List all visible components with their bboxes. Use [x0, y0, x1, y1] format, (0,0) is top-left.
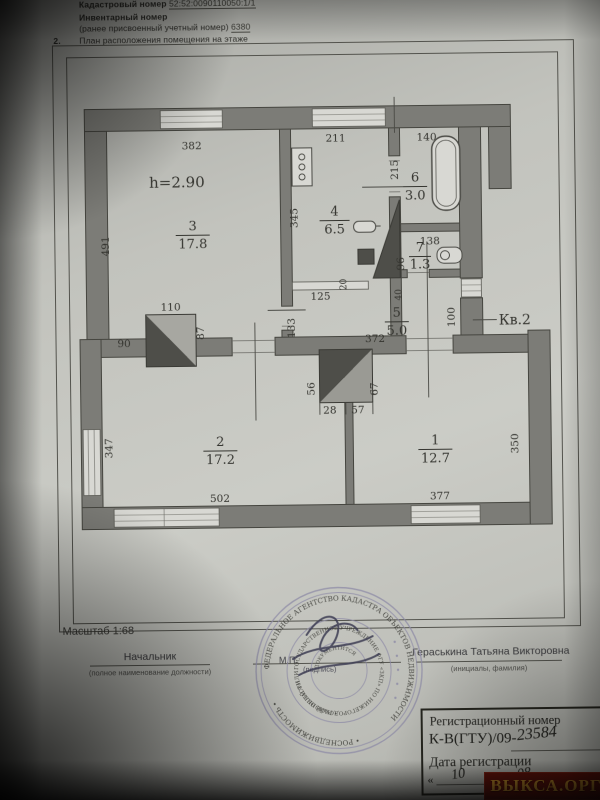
kitchen-stove-icon — [292, 148, 312, 186]
dim-90: 90 — [117, 338, 131, 350]
date-day-handwritten: 10 — [450, 766, 466, 784]
room-label-3: 3 17.8 — [176, 219, 210, 252]
number-blank-line — [511, 749, 600, 751]
cadastral-label: Кадастровый номер — [79, 0, 167, 10]
stamp-ring-outer-a: ФЕДЕРАЛЬНОЕ АГЕНТСТВО КАДАСТРА ОБЪЕКТОВ … — [262, 594, 416, 724]
registration-number-handwritten: 23584 — [516, 723, 558, 745]
svg-text:ФЕДЕРАЛЬНОЕ АГЕНТСТВО КАДАСТРА: ФЕДЕРАЛЬНОЕ АГЕНТСТВО КАДАСТРА ОБЪЕКТОВ … — [262, 594, 416, 724]
dim-100: 100 — [446, 307, 458, 327]
round-stamp: ФЕДЕРАЛЬНОЕ АГЕНТСТВО КАДАСТРА ОБЪЕКТОВ … — [244, 575, 436, 767]
svg-text:1.3: 1.3 — [410, 257, 431, 272]
open-quote: « — [427, 772, 433, 787]
floor-plan-drawing: 3 17.8 4 6.5 6 3.0 7 1.3 — [25, 35, 587, 642]
inventory-note-line: (ранее присвоенный учетный номер) 6380 — [79, 22, 256, 34]
svg-text:6: 6 — [411, 171, 419, 186]
cadastral-value: 52:52:0090110050:1/1 — [169, 0, 256, 10]
dim-133: 133 — [286, 318, 298, 338]
dim-377: 377 — [430, 490, 450, 502]
room-label-4: 4 6.5 — [319, 204, 349, 237]
room-label-2: 2 17.2 — [203, 435, 237, 468]
dim-502: 502 — [210, 493, 230, 505]
position-underline — [90, 664, 210, 666]
dim-372: 372 — [365, 333, 385, 345]
dim-87: 87 — [195, 326, 207, 340]
dim-125: 125 — [310, 291, 330, 303]
paper-document: Кадастровый номер 52:52:0090110050:1/1 И… — [0, 0, 600, 800]
dim-347: 347 — [103, 438, 115, 458]
dim-215: 215 — [389, 160, 401, 180]
dim-20: 20 — [339, 278, 349, 290]
registration-prefix: К-В(ГТУ)/09- — [429, 730, 517, 748]
room-label-6: 6 3.0 — [403, 170, 427, 203]
svg-text:3.0: 3.0 — [405, 188, 426, 203]
svg-text:2: 2 — [216, 435, 224, 450]
dim-382: 382 — [182, 140, 202, 152]
inventory-label: Инвентарный номер — [79, 12, 168, 23]
toilet-icon — [437, 247, 462, 263]
dim-140: 140 — [416, 131, 436, 143]
dim-67: 67 — [369, 382, 381, 396]
room-labels: 3 17.8 4 6.5 6 3.0 7 1.3 — [175, 170, 453, 469]
header-block: Кадастровый номер 52:52:0090110050:1/1 И… — [79, 0, 256, 34]
svg-text:3: 3 — [188, 219, 196, 234]
room-label-1: 1 12.7 — [418, 433, 452, 466]
svg-text:12.7: 12.7 — [421, 451, 450, 466]
svg-text:1: 1 — [431, 433, 439, 448]
stamp-dots — [394, 641, 400, 699]
dim-57: 57 — [351, 404, 365, 416]
dim-345: 345 — [288, 208, 300, 228]
scale-label: Масштаб 1:68 — [62, 625, 134, 638]
dim-28: 28 — [323, 405, 337, 417]
stove-room3 — [146, 314, 197, 367]
dim-40: 40 — [394, 289, 404, 301]
dim-110: 110 — [161, 301, 181, 313]
name-note: (инициалы, фамилия) — [416, 663, 562, 674]
svg-text:6.5: 6.5 — [324, 222, 345, 237]
stove-lower — [319, 349, 373, 403]
dim-96: 96 — [395, 257, 407, 271]
site-watermark-text: ВЫКСА.ОРГ — [490, 776, 600, 796]
room-label-5: 5 5.0 — [385, 306, 409, 339]
photo-of-floor-plan-document: Кадастровый номер 52:52:0090110050:1/1 И… — [0, 0, 600, 800]
inventory-value: 6380 — [231, 22, 250, 33]
dim-491: 491 — [100, 236, 112, 256]
position-title: Начальник — [90, 650, 210, 663]
dim-138: 138 — [420, 235, 440, 247]
ceiling-height-label: h=2.90 — [149, 173, 205, 192]
dim-350: 350 — [509, 433, 521, 453]
svg-text:5.0: 5.0 — [386, 324, 407, 339]
dim-211: 211 — [325, 132, 345, 144]
svg-text:17.2: 17.2 — [206, 453, 235, 468]
svg-text:4: 4 — [330, 205, 338, 220]
dim-56: 56 — [306, 382, 318, 396]
site-watermark: ВЫКСА.ОРГ — [484, 772, 600, 800]
svg-text:5: 5 — [392, 306, 400, 321]
apartment-label: Кв.2 — [499, 312, 531, 328]
inventory-note: (ранее присвоенный учетный номер) — [79, 22, 229, 34]
svg-text:17.8: 17.8 — [178, 237, 207, 252]
bathtub-icon — [432, 136, 461, 210]
position-note: (полное наименование должности) — [70, 667, 230, 678]
cadastral-number-line: Кадастровый номер 52:52:0090110050:1/1 — [79, 0, 256, 10]
sink-icon — [354, 221, 381, 232]
